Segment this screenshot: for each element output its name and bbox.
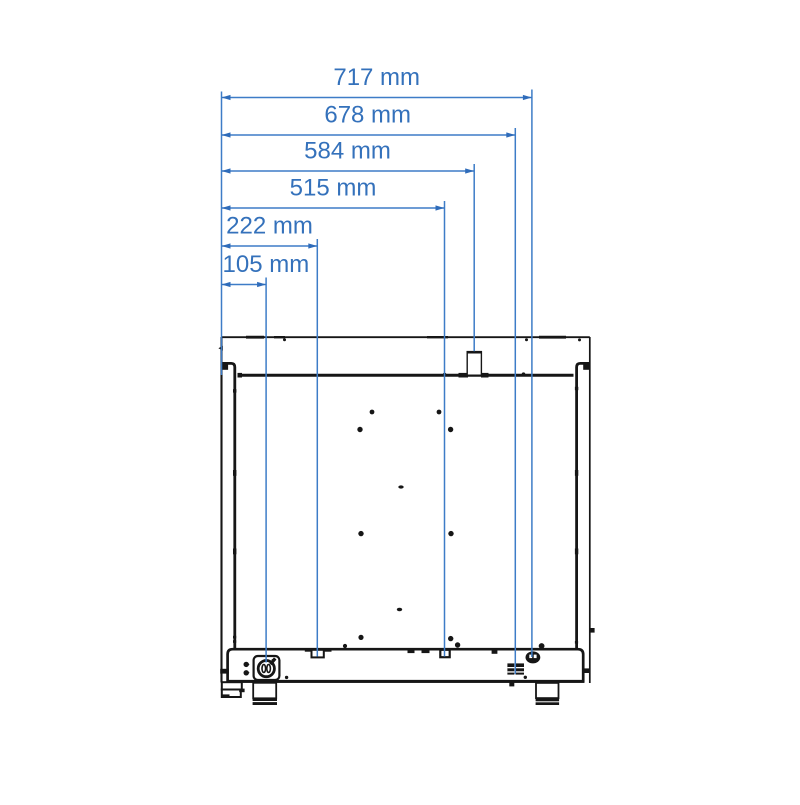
svg-text:584 mm: 584 mm — [304, 138, 391, 165]
svg-text:222 mm: 222 mm — [226, 213, 313, 240]
svg-text:678 mm: 678 mm — [324, 102, 411, 129]
svg-text:717 mm: 717 mm — [333, 64, 420, 91]
svg-text:105 mm: 105 mm — [223, 251, 310, 278]
svg-text:515 mm: 515 mm — [290, 175, 377, 202]
